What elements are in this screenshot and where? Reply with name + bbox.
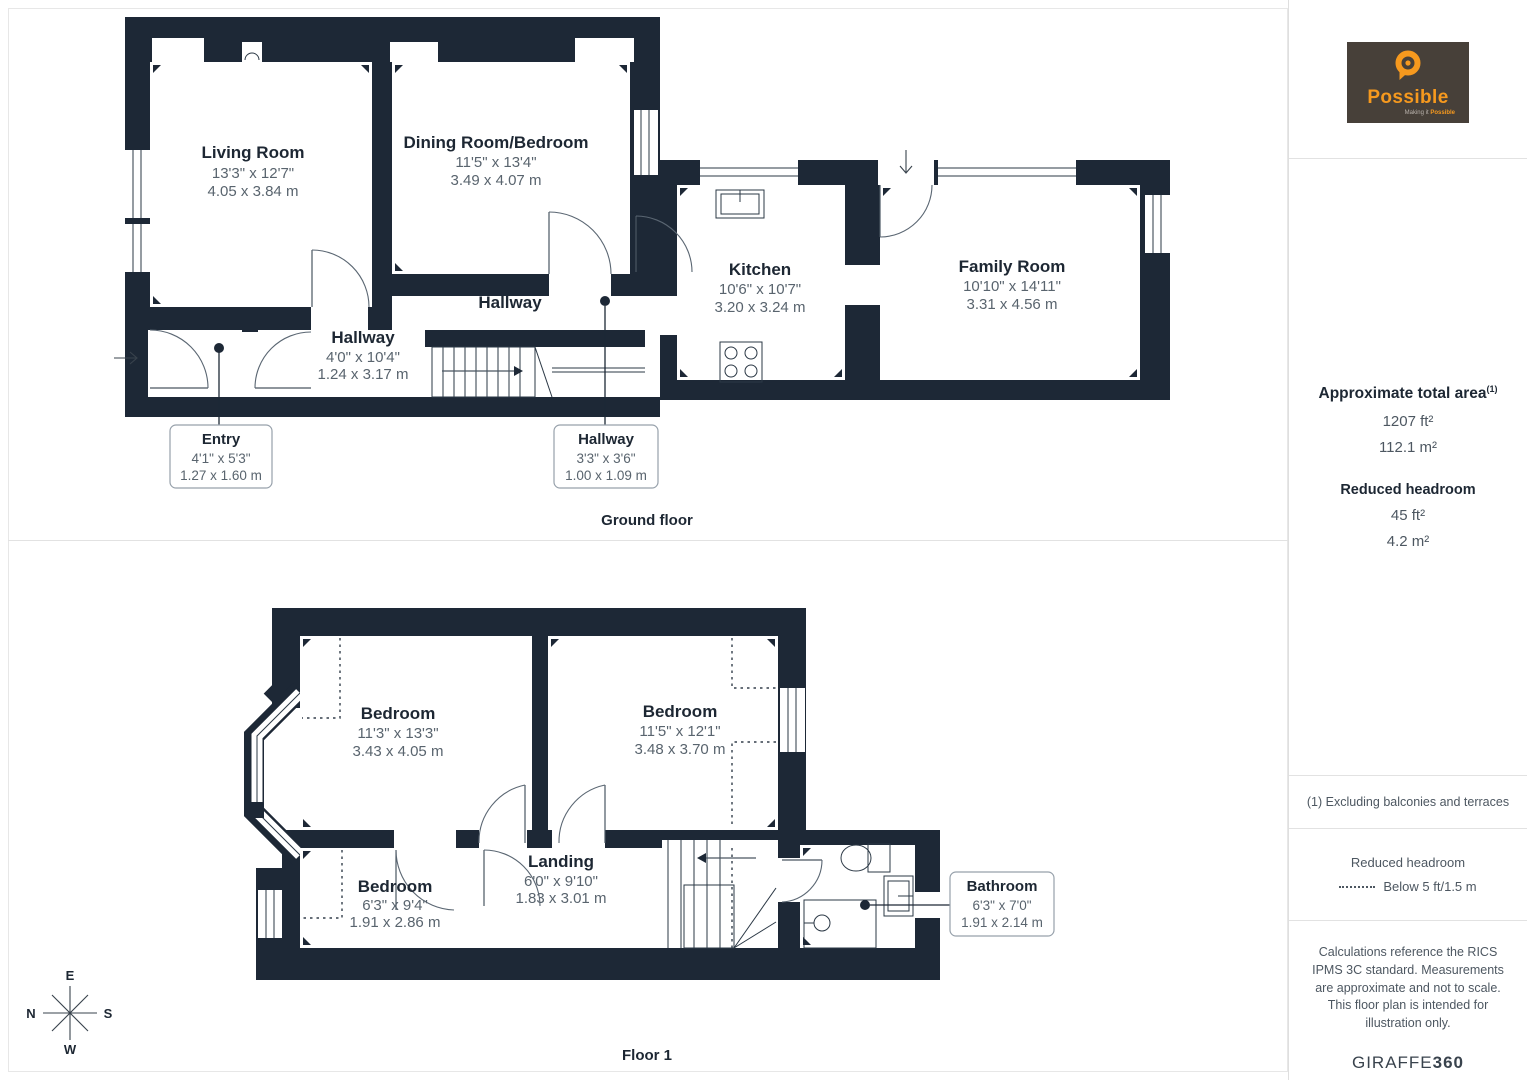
wall-bottom <box>256 948 940 980</box>
reduced-headroom-title: Reduced headroom <box>1340 482 1475 498</box>
legend-section: Reduced headroom Below 5 ft/1.5 m <box>1289 828 1527 920</box>
svg-text:Bedroom: Bedroom <box>358 877 433 896</box>
svg-text:4'1" x 5'3": 4'1" x 5'3" <box>191 451 250 466</box>
svg-text:Bedroom: Bedroom <box>361 704 436 723</box>
window-bedroom-bl-left <box>258 890 282 938</box>
svg-text:11'5" x 12'1": 11'5" x 12'1" <box>639 723 720 740</box>
window-bedroom-tr-right <box>780 688 805 752</box>
svg-text:Entry: Entry <box>202 431 241 448</box>
room-label-bedroom-tr: Bedroom 11'5" x 12'1" 3.48 x 3.70 m <box>635 702 726 758</box>
ground-floor-plan: Living Room 13'3" x 12'7" 4.05 x 3.84 m … <box>0 0 1288 540</box>
window-family-top <box>938 160 1076 185</box>
svg-text:Dining Room/Bedroom: Dining Room/Bedroom <box>403 133 588 152</box>
dotted-line-swatch <box>1339 886 1375 888</box>
compass: E N S W <box>26 968 112 1057</box>
alcove-1 <box>152 38 204 62</box>
svg-text:1.00 x 1.09 m: 1.00 x 1.09 m <box>565 468 647 483</box>
room-label-bedroom-bl: Bedroom 6'3" x 9'4" 1.91 x 2.86 m <box>350 877 441 931</box>
panel-divider <box>8 540 1288 541</box>
compass-n: N <box>26 1006 35 1021</box>
window-dining-right <box>634 110 658 175</box>
svg-text:3.48 x 3.70 m: 3.48 x 3.70 m <box>635 741 726 758</box>
leader-dot-entry <box>214 343 224 353</box>
agency-logo: Possible Making it Possible <box>1347 42 1469 123</box>
compass-s: S <box>104 1006 113 1021</box>
disclaimer-section: Calculations reference the RICS IPMS 3C … <box>1289 920 1527 1080</box>
svg-text:4.05 x 3.84 m: 4.05 x 3.84 m <box>208 183 299 200</box>
area-ft: 1207 ft² <box>1383 413 1434 430</box>
leader-dot-bathroom <box>860 900 870 910</box>
svg-text:4'0" x 10'4": 4'0" x 10'4" <box>326 349 400 366</box>
svg-text:Bathroom: Bathroom <box>967 878 1038 895</box>
logo-tagline: Making it Possible <box>1405 110 1455 116</box>
footnote-section: (1) Excluding balconies and terraces <box>1289 775 1527 828</box>
window-living-2 <box>125 224 150 272</box>
room-label-family-room: Family Room 10'10" x 14'11" 3.31 x 4.56 … <box>959 257 1066 313</box>
area-section: Approximate total area(1) 1207 ft² 112.1… <box>1289 158 1527 775</box>
alcove-4 <box>575 38 634 62</box>
svg-text:Hallway: Hallway <box>578 431 635 448</box>
callout-bathroom: Bathroom 6'3" x 7'0" 1.91 x 2.14 m <box>950 872 1054 936</box>
logo-wordmark: Possible <box>1367 87 1448 109</box>
doorframe-stub <box>242 318 258 332</box>
logo-section: Possible Making it Possible <box>1289 0 1527 158</box>
reduced-headroom-m: 4.2 m² <box>1387 533 1430 550</box>
svg-text:3.31 x 4.56 m: 3.31 x 4.56 m <box>967 296 1058 313</box>
legend-title: Reduced headroom <box>1351 855 1465 870</box>
reduced-headroom-ft: 45 ft² <box>1391 507 1425 524</box>
svg-text:3'3" x 3'6": 3'3" x 3'6" <box>576 451 635 466</box>
svg-text:Family Room: Family Room <box>959 257 1066 276</box>
room-label-living-room: Living Room 13'3" x 12'7" 4.05 x 3.84 m <box>202 143 305 200</box>
info-sidebar: Possible Making it Possible Approximate … <box>1288 0 1527 1080</box>
svg-text:Bedroom: Bedroom <box>643 702 718 721</box>
window-kitchen-top <box>700 160 798 185</box>
wall-top <box>272 608 806 636</box>
leader-dot-hallway <box>600 296 610 306</box>
svg-text:6'3" x 7'0": 6'3" x 7'0" <box>972 898 1031 913</box>
door-gap-bathroom <box>778 858 800 902</box>
compass-w: W <box>64 1042 77 1057</box>
floor-1-title: Floor 1 <box>622 1047 672 1064</box>
callout-hallway: Hallway 3'3" x 3'6" 1.00 x 1.09 m <box>554 425 658 488</box>
room-label-landing: Landing 6'0" x 9'10" 1.83 x 3.01 m <box>516 852 607 907</box>
svg-text:Hallway: Hallway <box>331 328 395 347</box>
svg-text:3.43 x 4.05 m: 3.43 x 4.05 m <box>353 743 444 760</box>
floorplan-page: Living Room 13'3" x 12'7" 4.05 x 3.84 m … <box>0 0 1527 1080</box>
wall-bedroom-divider <box>532 636 548 830</box>
footnote-text: (1) Excluding balconies and terraces <box>1307 795 1509 809</box>
area-title: Approximate total area(1) <box>1319 384 1498 403</box>
svg-text:13'3" x 12'7": 13'3" x 12'7" <box>212 165 294 182</box>
svg-text:1.27 x 1.60 m: 1.27 x 1.60 m <box>180 468 262 483</box>
svg-text:1.91 x 2.14 m: 1.91 x 2.14 m <box>961 915 1043 930</box>
svg-text:3.49 x 4.07 m: 3.49 x 4.07 m <box>451 172 542 189</box>
svg-text:3.20 x 3.24 m: 3.20 x 3.24 m <box>715 299 806 316</box>
svg-text:11'5" x 13'4": 11'5" x 13'4" <box>455 154 536 171</box>
floor-1-plan: Bedroom 11'3" x 13'3" 3.43 x 4.05 m Bedr… <box>0 540 1288 1080</box>
callout-entry: Entry 4'1" x 5'3" 1.27 x 1.60 m <box>170 425 272 488</box>
compass-e: E <box>66 968 75 983</box>
area-m: 112.1 m² <box>1379 439 1437 456</box>
kitchen-opening <box>655 296 677 335</box>
svg-text:11'3" x 13'3": 11'3" x 13'3" <box>357 725 438 742</box>
room-label-bedroom-tl: Bedroom 11'3" x 13'3" 3.43 x 4.05 m <box>353 704 444 760</box>
svg-text:Kitchen: Kitchen <box>729 260 791 279</box>
svg-text:6'0" x 9'10": 6'0" x 9'10" <box>524 873 598 890</box>
door-gap-bedroom-tl <box>479 830 527 848</box>
logo-pin-icon <box>1392 49 1424 85</box>
legend-label: Below 5 ft/1.5 m <box>1383 879 1476 894</box>
svg-text:10'10" x 14'11": 10'10" x 14'11" <box>963 278 1061 295</box>
ground-floor-title: Ground floor <box>601 512 693 529</box>
svg-text:1.83 x 3.01 m: 1.83 x 3.01 m <box>516 890 607 907</box>
door-gap-living <box>311 307 368 330</box>
svg-text:Landing: Landing <box>528 852 594 871</box>
kitchen-family-opening <box>845 265 880 305</box>
svg-text:1.24 x 3.17 m: 1.24 x 3.17 m <box>318 366 409 383</box>
svg-text:6'3" x 9'4": 6'3" x 9'4" <box>362 897 428 914</box>
room-label-hallway-upper: Hallway <box>478 293 542 312</box>
wall-stairs-top <box>425 330 645 347</box>
svg-text:Living Room: Living Room <box>202 143 305 162</box>
disclaimer-text: Calculations reference the RICS IPMS 3C … <box>1311 944 1505 1033</box>
svg-text:10'6" x 10'7": 10'6" x 10'7" <box>719 281 801 298</box>
window-family-right <box>1145 195 1170 253</box>
door-gap-dining <box>549 274 611 296</box>
alcove-3 <box>390 42 438 62</box>
giraffe360-credit: GIRAFFE360 <box>1352 1053 1464 1073</box>
svg-text:1.91 x 2.86 m: 1.91 x 2.86 m <box>350 914 441 931</box>
door-gap-bedroom-bl <box>394 830 456 848</box>
window-living-1 <box>125 150 150 218</box>
area-footnote-marker: (1) <box>1486 384 1497 394</box>
